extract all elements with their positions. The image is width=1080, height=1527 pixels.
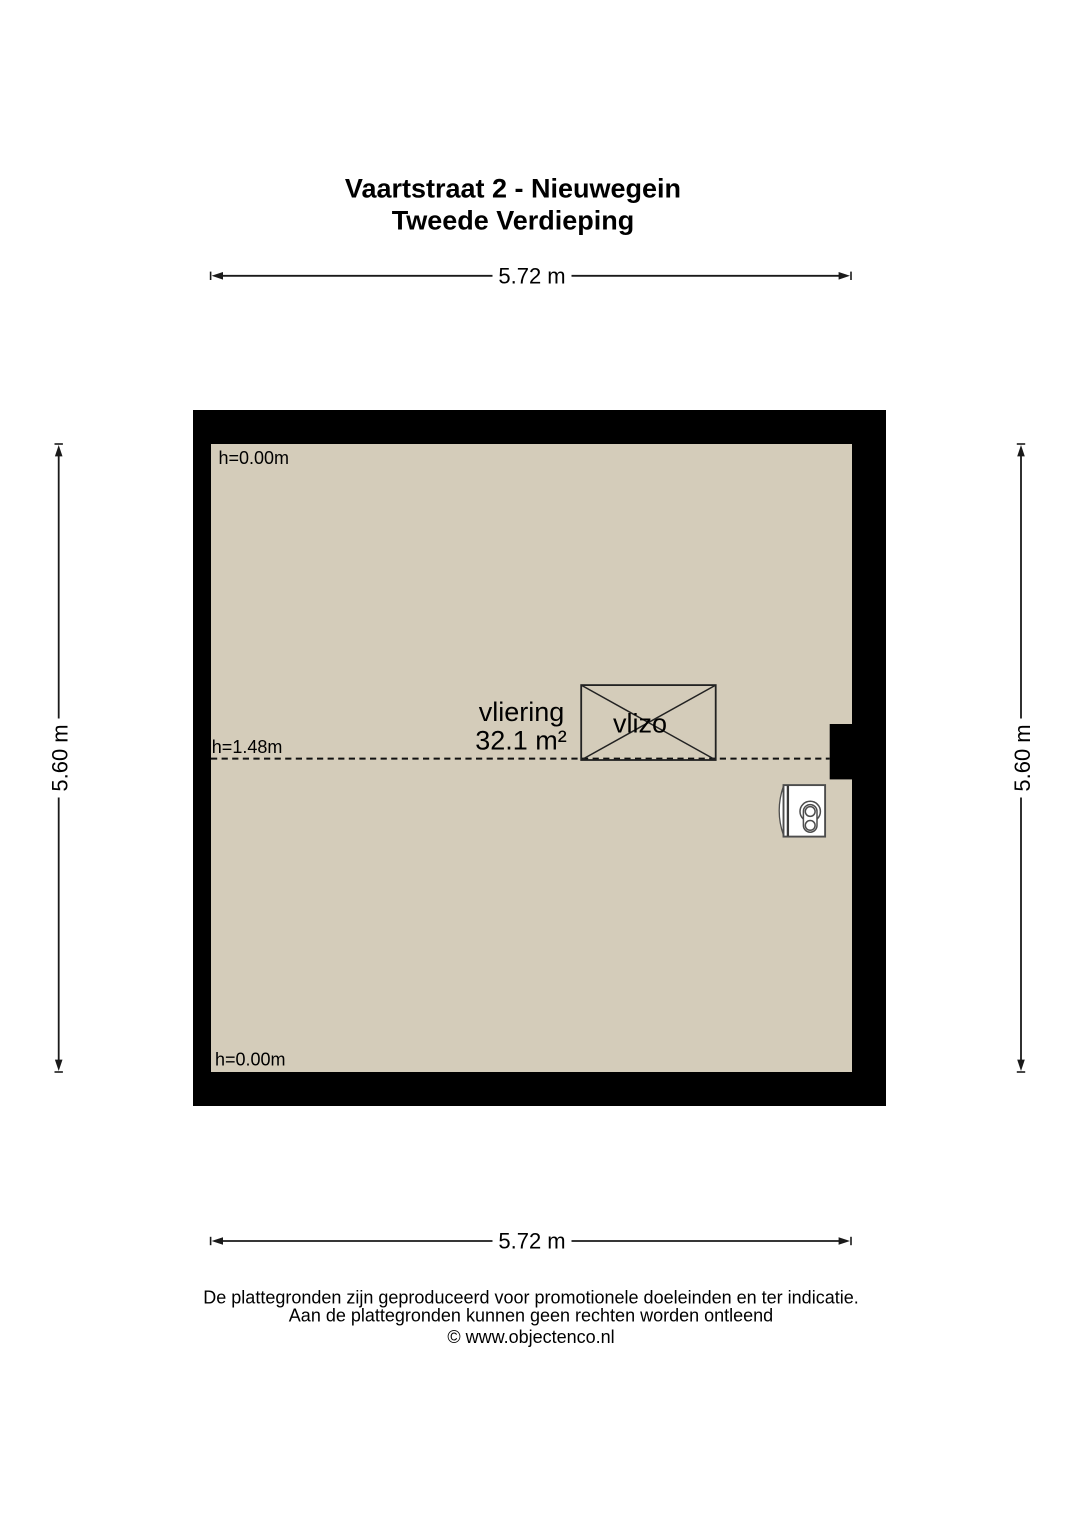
svg-text:Vaartstraat 2 - Nieuwegein: Vaartstraat 2 - Nieuwegein bbox=[345, 174, 681, 204]
svg-text:h=0.00m: h=0.00m bbox=[215, 1050, 286, 1070]
svg-text:vlizo: vlizo bbox=[613, 709, 667, 739]
svg-text:32.1 m²: 32.1 m² bbox=[475, 725, 567, 755]
svg-text:h=1.48m: h=1.48m bbox=[212, 737, 283, 757]
svg-text:h=0.00m: h=0.00m bbox=[219, 448, 290, 468]
svg-text:5.60 m: 5.60 m bbox=[47, 724, 72, 791]
svg-text:Tweede Verdieping: Tweede Verdieping bbox=[392, 205, 635, 235]
svg-text:© www.objectenco.nl: © www.objectenco.nl bbox=[447, 1327, 614, 1347]
svg-text:5.72 m: 5.72 m bbox=[498, 1229, 565, 1254]
svg-text:Aan de plattegronden kunnen ge: Aan de plattegronden kunnen geen rechten… bbox=[289, 1305, 773, 1325]
svg-text:vliering: vliering bbox=[479, 697, 565, 727]
svg-text:5.72 m: 5.72 m bbox=[498, 263, 565, 288]
svg-text:5.60 m: 5.60 m bbox=[1010, 724, 1035, 791]
